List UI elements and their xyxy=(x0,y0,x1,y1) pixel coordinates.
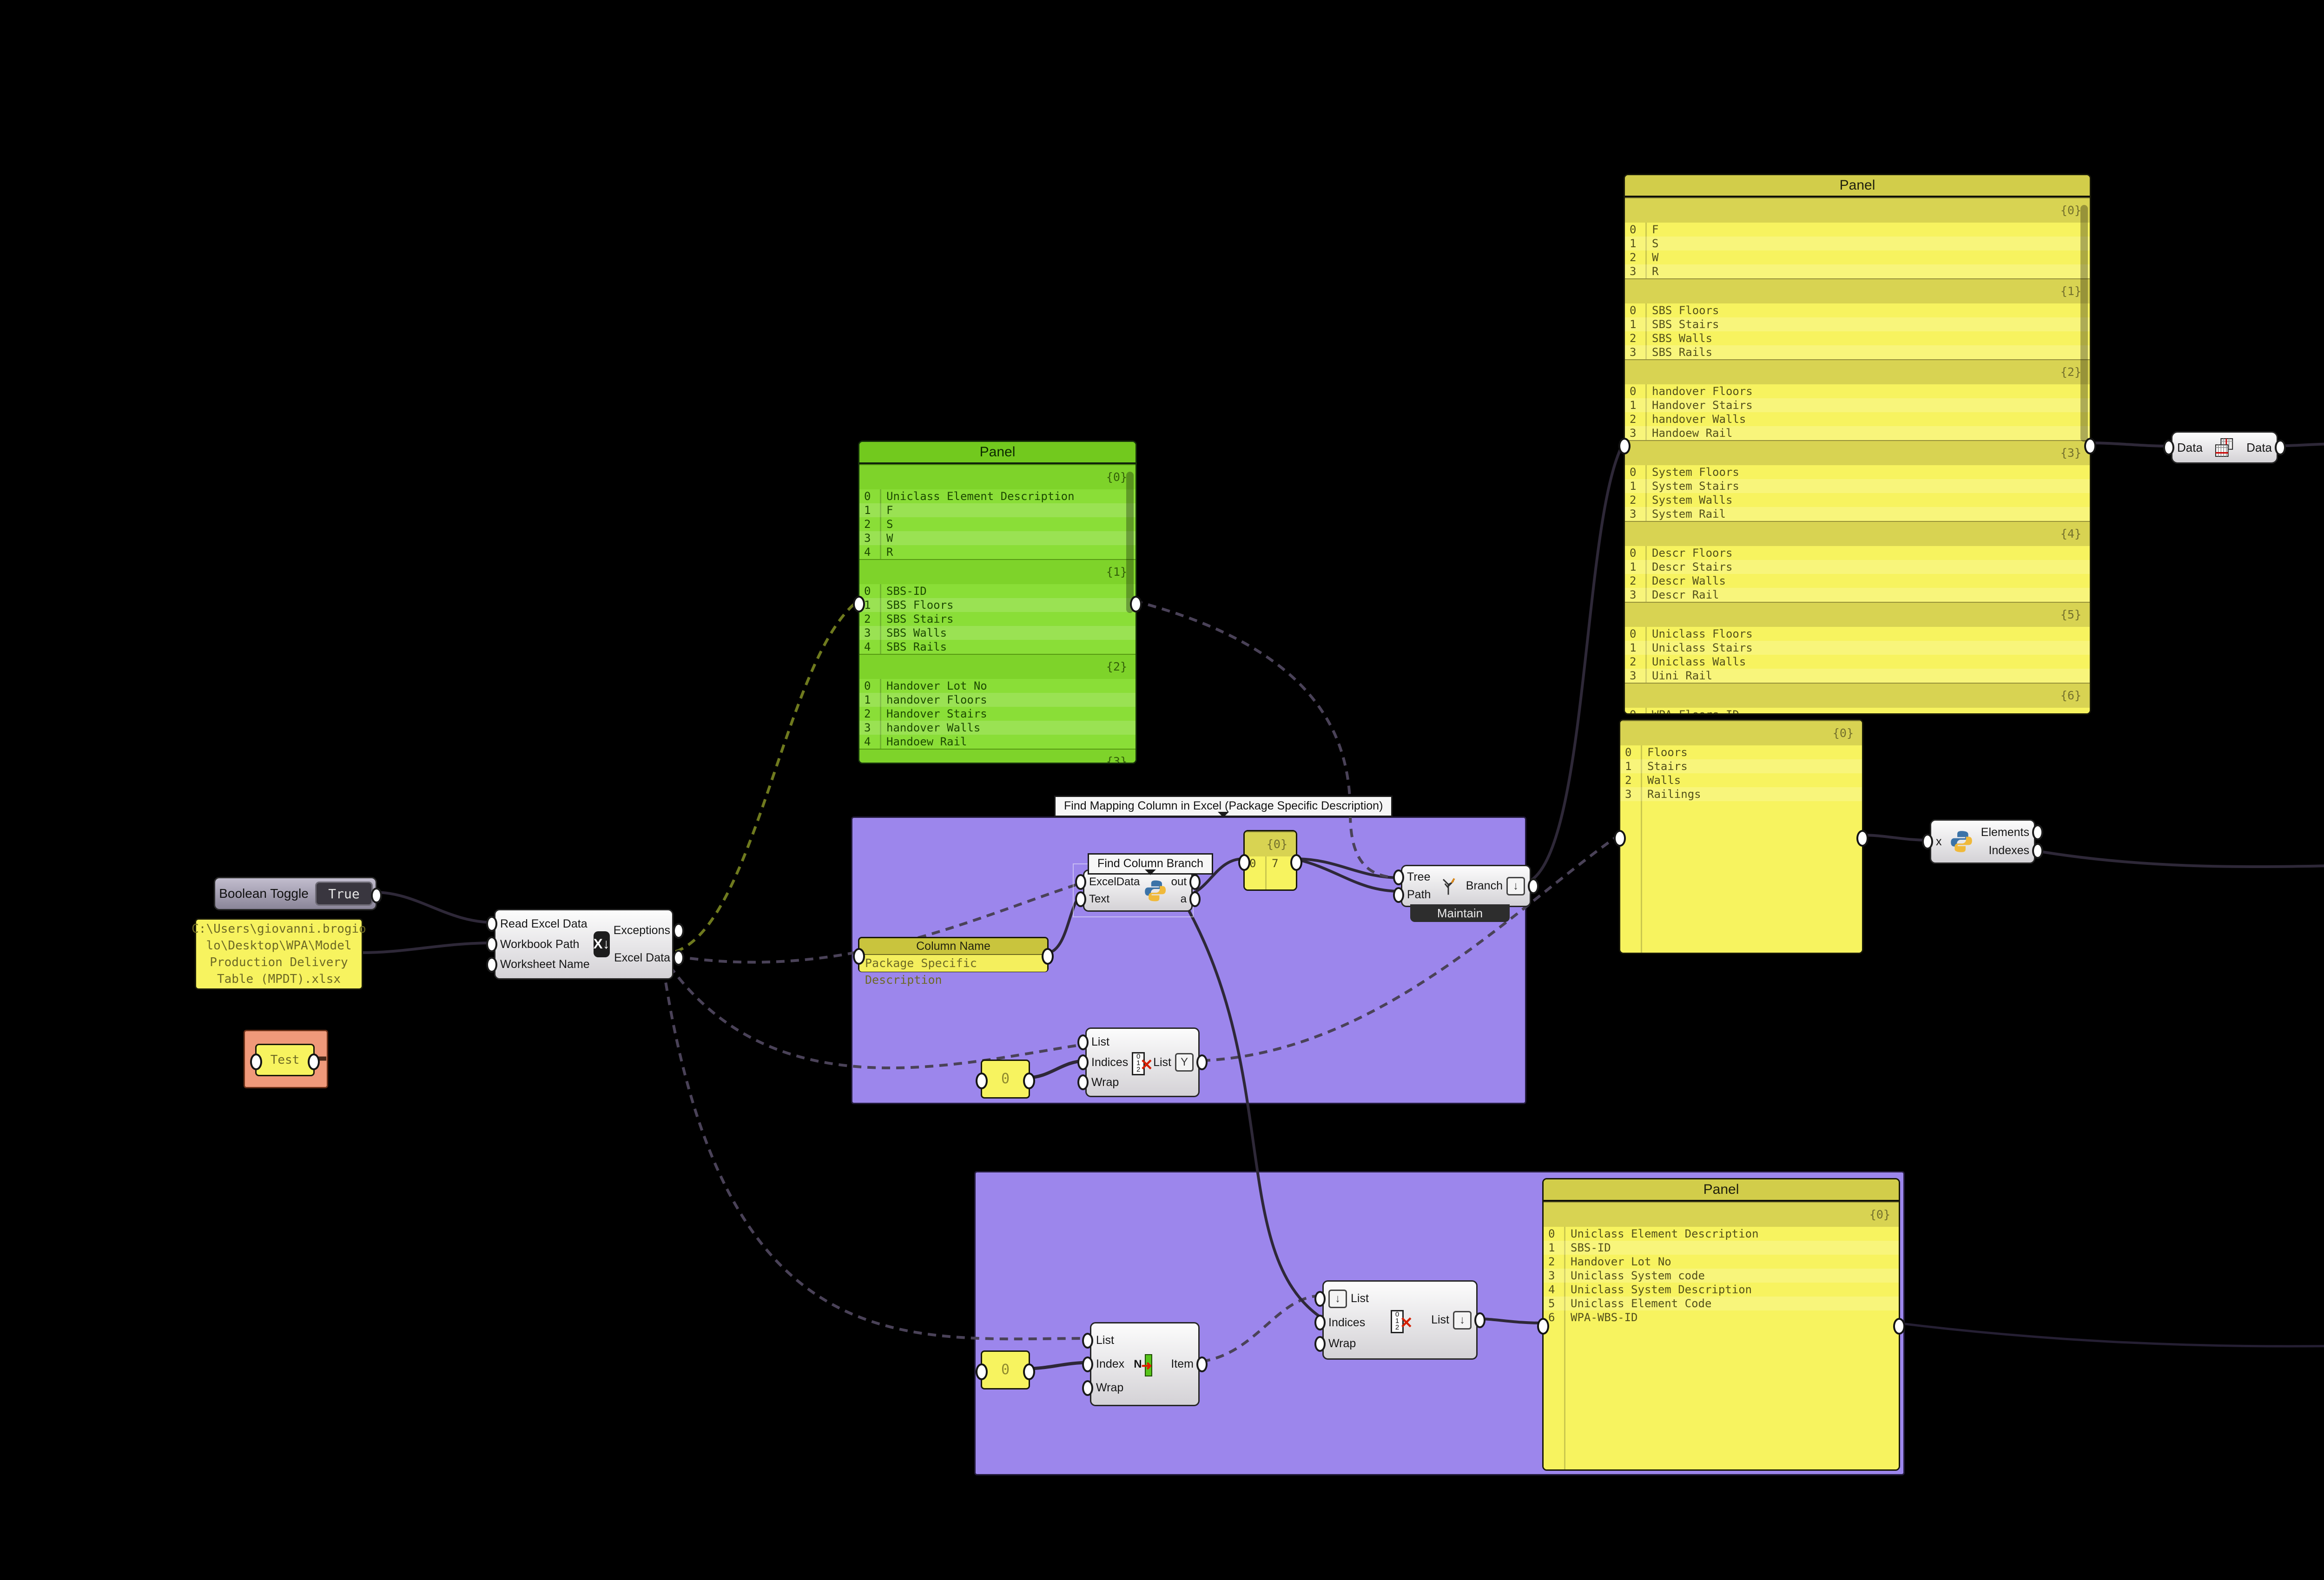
row-index: 2 xyxy=(1544,1255,1564,1269)
row-index: 1 xyxy=(1625,479,1645,493)
row-index: 0 xyxy=(1625,303,1645,317)
input-indices[interactable]: Indices xyxy=(1091,1056,1128,1069)
panel-row: 0Uniclass Element Description xyxy=(859,489,1136,503)
mapping-columns-panel[interactable]: Panel{0}0Uniclass Element Description1SB… xyxy=(1542,1178,1900,1471)
panel-row: 4Uniclass System Description xyxy=(1544,1283,1899,1297)
row-value: System Rail xyxy=(1645,507,1726,521)
row-value: Uniclass System Description xyxy=(1564,1283,1752,1297)
row-value: Uniclass Walls xyxy=(1645,655,1746,669)
input-x[interactable]: x xyxy=(1936,835,1942,849)
row-index: 3 xyxy=(1625,588,1645,602)
wire-exceldata-to-green-panel xyxy=(661,601,858,954)
panel-row: 3R xyxy=(1625,264,2090,278)
panel-row: 2System Walls xyxy=(1625,493,2090,507)
row-value: Uniclass Element Code xyxy=(1564,1297,1711,1310)
row-index: 3 xyxy=(1625,345,1645,359)
row-value: Handover Stairs xyxy=(1645,398,1753,412)
panel-row: 3Uniclass System code xyxy=(1544,1269,1899,1283)
panel-row: 4Handoew Rail xyxy=(859,735,1136,749)
row-value: System Walls xyxy=(1645,493,1732,507)
row-index: 2 xyxy=(1625,655,1645,669)
input-index[interactable]: Index xyxy=(1096,1357,1124,1371)
input-wrap[interactable]: Wrap xyxy=(1328,1337,1369,1350)
panel-row: 0F xyxy=(1625,223,2090,237)
output-branch[interactable]: Branch↓ xyxy=(1466,877,1525,895)
row-value: S xyxy=(880,517,893,531)
list-item-bottom-component[interactable]: List Index Wrap N➜ Item xyxy=(1090,1322,1200,1406)
data-table-icon xyxy=(2214,438,2235,457)
panel-row: 1handover Floors xyxy=(859,693,1136,707)
input-list[interactable]: ↓List xyxy=(1328,1290,1369,1308)
row-index: 1 xyxy=(1544,1241,1564,1255)
row-index: 2 xyxy=(1625,331,1645,345)
branch-path-header: {4} xyxy=(1625,521,2090,546)
row-value: SBS Walls xyxy=(1645,331,1712,345)
panel-row: 2Descr Walls xyxy=(1625,574,2090,588)
output-data[interactable]: Data xyxy=(2246,441,2272,455)
green-data-panel[interactable]: Panel{0}0Uniclass Element Description1F2… xyxy=(858,441,1137,764)
row-value: SBS-ID xyxy=(880,584,927,598)
panel-row: 2handover Walls xyxy=(1625,412,2090,426)
test-panel[interactable]: Test xyxy=(255,1044,315,1076)
row-index: 2 xyxy=(859,612,880,626)
row-value: W xyxy=(1645,250,1658,264)
row-value: Handover Lot No xyxy=(1564,1255,1671,1269)
row-index: 0 xyxy=(1625,223,1645,237)
panel-row: 0handover Floors xyxy=(1625,384,2090,398)
panel-row: 3handover Walls xyxy=(859,721,1136,735)
row-index: 0 xyxy=(1625,465,1645,479)
row-value: Walls xyxy=(1641,773,1681,787)
row-value: 7 xyxy=(1265,856,1278,870)
branch-path-header: {3} xyxy=(859,749,1136,763)
row-index: 4 xyxy=(1544,1283,1564,1297)
panel-row: 3W xyxy=(859,531,1136,545)
input-wrap[interactable]: Wrap xyxy=(1091,1076,1128,1089)
row-index: 1 xyxy=(859,598,880,612)
row-value: WPA Floors ID xyxy=(1645,708,1739,713)
row-value: SBS Rails xyxy=(880,640,947,654)
row-index: 0 xyxy=(1625,627,1645,641)
row-index: 3 xyxy=(859,721,880,735)
row-index: 4 xyxy=(859,735,880,749)
row-value: handover Walls xyxy=(1645,412,1746,426)
row-index: 0 xyxy=(1625,708,1645,713)
panel-row: 2S xyxy=(859,517,1136,531)
output-exceptions[interactable]: Exceptions xyxy=(614,924,670,937)
column-index-panel[interactable]: {0}07 xyxy=(1243,830,1297,891)
row-index: 2 xyxy=(859,517,880,531)
index-zero-panel[interactable]: 0 xyxy=(981,1060,1030,1099)
wire-filepath-to-workbook xyxy=(360,943,494,953)
grasshopper-canvas[interactable]: Boolean Toggle True C:\Users\giovanni.br… xyxy=(0,0,2324,1580)
panel-row: 3SBS Walls xyxy=(859,626,1136,640)
input-worksheet-name[interactable]: Worksheet Name xyxy=(500,958,590,971)
row-index: 0 xyxy=(859,584,880,598)
panel-row: 1SBS Floors xyxy=(859,598,1136,612)
row-index: 0 xyxy=(1544,1227,1564,1241)
panel-row: 1Stairs xyxy=(1620,759,1862,773)
categories-panel[interactable]: {0}0Floors1Stairs2Walls3Railings xyxy=(1619,719,1863,954)
row-index: 0 xyxy=(1625,384,1645,398)
row-index: 1 xyxy=(1620,759,1641,773)
row-value: Floors xyxy=(1641,745,1688,759)
branch-path-header: {0} xyxy=(1245,831,1296,856)
graft-down-icon: ↓ xyxy=(1506,877,1525,895)
row-index: 1 xyxy=(1625,398,1645,412)
row-value: Handover Stairs xyxy=(880,707,987,721)
row-index: 6 xyxy=(1544,1310,1564,1324)
panel-row: 2SBS Stairs xyxy=(859,612,1136,626)
boolean-toggle-label: Boolean Toggle xyxy=(215,886,312,901)
wire-big-to-data xyxy=(2088,443,2171,446)
panel-row: 1Handover Stairs xyxy=(1625,398,2090,412)
row-value: Uniclass Floors xyxy=(1645,627,1753,641)
row-value: SBS Floors xyxy=(1645,303,1719,317)
row-value: Descr Stairs xyxy=(1645,560,1732,574)
panel-row: 0WPA Floors ID xyxy=(1625,708,2090,713)
branch-path-header: {0} xyxy=(859,464,1136,489)
row-index: 1 xyxy=(1625,641,1645,655)
branch-path-header: {2} xyxy=(859,654,1136,679)
panel-body: {0}0F1S2W3R{1}0SBS Floors1SBS Stairs2SBS… xyxy=(1625,197,2090,713)
row-index: 2 xyxy=(1625,250,1645,264)
panel-row: 1F xyxy=(859,503,1136,517)
row-index: 2 xyxy=(1620,773,1641,787)
row-value: Uniclass System code xyxy=(1564,1269,1705,1283)
panel-row: 0Uniclass Element Description xyxy=(1544,1227,1899,1241)
list-item-icon: N➜ xyxy=(1137,1354,1158,1375)
row-index: 0 xyxy=(1245,856,1265,870)
python-find-column-component[interactable]: ExcelData Text out a xyxy=(1083,869,1193,912)
branch-path-header: {6} xyxy=(1625,683,2090,708)
row-value: SBS Stairs xyxy=(1645,317,1719,331)
input-workbook-path[interactable]: Workbook Path xyxy=(500,938,590,951)
row-value: SBS Stairs xyxy=(880,612,954,626)
panel-row: 5Uniclass Element Code xyxy=(1544,1297,1899,1310)
panel-row: 07 xyxy=(1245,856,1296,870)
python-icon xyxy=(1949,829,1974,854)
python-icon xyxy=(1143,879,1167,903)
row-value: SBS Walls xyxy=(880,626,947,640)
row-index: 2 xyxy=(1625,493,1645,507)
row-index: 4 xyxy=(859,640,880,654)
excel-download-icon: X↓ xyxy=(594,931,610,957)
flatten-down-icon: ↓ xyxy=(1453,1311,1472,1330)
panel-row: 2W xyxy=(1625,250,2090,264)
branch-path-header: {2} xyxy=(1625,359,2090,384)
row-value: S xyxy=(1645,237,1658,250)
panel-row: 3Descr Rail xyxy=(1625,588,2090,602)
panel-row: 4SBS Rails xyxy=(859,640,1136,654)
panel-row: 2Handover Lot No xyxy=(1544,1255,1899,1269)
row-value: handover Walls xyxy=(880,721,980,735)
row-index: 0 xyxy=(859,489,880,503)
panel-row: 1Uniclass Stairs xyxy=(1625,641,2090,655)
branch-path-header: {3} xyxy=(1625,440,2090,465)
panel-row: 1System Stairs xyxy=(1625,479,2090,493)
input-data[interactable]: Data xyxy=(2177,441,2203,455)
column-name-value[interactable]: Package Specific Description xyxy=(859,955,1047,972)
row-value: F xyxy=(1645,223,1658,237)
output-elements[interactable]: Elements xyxy=(1981,826,2029,839)
row-index: 3 xyxy=(859,531,880,545)
panel-row: 4R xyxy=(859,545,1136,559)
column-name-title: Column Name xyxy=(859,938,1047,955)
row-value: Handoew Rail xyxy=(1645,426,1732,440)
row-index: 0 xyxy=(1625,546,1645,560)
panel-row: 2Walls xyxy=(1620,773,1862,787)
row-value: Descr Walls xyxy=(1645,574,1726,588)
row-index: 3 xyxy=(1544,1269,1564,1283)
panel-row: 2Uniclass Walls xyxy=(1625,655,2090,669)
row-value: R xyxy=(880,545,893,559)
row-index: 2 xyxy=(859,707,880,721)
branch-path-header: {1} xyxy=(1625,278,2090,303)
panel-row: 0SBS Floors xyxy=(1625,303,2090,317)
panel-row: 0Handover Lot No xyxy=(859,679,1136,693)
row-value: Descr Rail xyxy=(1645,588,1719,602)
panel-row: 0System Floors xyxy=(1625,465,2090,479)
row-value: F xyxy=(880,503,893,517)
output-list[interactable]: ListY xyxy=(1153,1053,1194,1072)
row-index: 2 xyxy=(1625,574,1645,588)
row-value: handover Floors xyxy=(880,693,987,707)
row-index: 3 xyxy=(1625,507,1645,521)
panel-row: 3Uini Rail xyxy=(1625,669,2090,683)
big-data-panel[interactable]: Panel{0}0F1S2W3R{1}0SBS Floors1SBS Stair… xyxy=(1624,174,2091,715)
row-value: handover Floors xyxy=(1645,384,1753,398)
boolean-toggle-value[interactable]: True xyxy=(315,882,373,906)
row-index: 3 xyxy=(1625,264,1645,278)
branch-path-header: {1} xyxy=(859,559,1136,584)
input-list[interactable]: List xyxy=(1096,1334,1124,1347)
output-excel-data[interactable]: Excel Data xyxy=(614,951,670,965)
row-index: 3 xyxy=(1625,669,1645,683)
file-path-panel[interactable]: C:\Users\giovanni.brogio lo\Desktop\WPA\… xyxy=(195,918,363,990)
row-value: Handover Lot No xyxy=(880,679,987,693)
tree-branch-mode[interactable]: Maintain xyxy=(1410,904,1510,922)
input-tree[interactable]: Tree xyxy=(1407,870,1431,884)
column-name-panel[interactable]: Column Name Package Specific Description xyxy=(858,937,1049,972)
panel-row: 2SBS Walls xyxy=(1625,331,2090,345)
tag-find-column-branch[interactable]: Find Column Branch xyxy=(1088,853,1213,875)
row-value: Uniclass Stairs xyxy=(1645,641,1753,655)
panel-body: {0}0Uniclass Element Description1SBS-ID2… xyxy=(1544,1202,1899,1469)
row-value: Railings xyxy=(1641,787,1701,801)
branch-path-header: {5} xyxy=(1625,602,2090,627)
panel-row: 3System Rail xyxy=(1625,507,2090,521)
row-value: Stairs xyxy=(1641,759,1688,773)
wire-toggle-to-read xyxy=(374,892,494,922)
wire-floors-to-python-elem xyxy=(1861,835,1930,840)
row-value: R xyxy=(1645,264,1658,278)
index-zero-panel-b[interactable]: 0 xyxy=(981,1350,1030,1389)
panel-title: Panel xyxy=(859,442,1136,464)
wire-mapping-to-set-params xyxy=(1897,1323,2324,1346)
data-component[interactable]: Data Data xyxy=(2171,431,2278,464)
list-item-icon: 012✕ xyxy=(1391,1310,1409,1330)
row-index: 3 xyxy=(1620,787,1641,801)
row-index: 2 xyxy=(1625,412,1645,426)
wire-branch-to-big-panel xyxy=(1519,443,1624,884)
panel-body: {0}07 xyxy=(1245,831,1296,889)
row-index: 1 xyxy=(859,503,880,517)
row-index: 1 xyxy=(1625,317,1645,331)
row-value: System Floors xyxy=(1645,465,1739,479)
input-list[interactable]: List xyxy=(1091,1035,1128,1049)
row-index: 0 xyxy=(859,679,880,693)
row-index: 3 xyxy=(1625,426,1645,440)
group-tag-find-mapping[interactable]: Find Mapping Column in Excel (Package Sp… xyxy=(1054,796,1393,817)
input-text[interactable]: Text xyxy=(1089,893,1140,906)
output-a[interactable]: a xyxy=(1181,893,1187,906)
output-list[interactable]: List↓ xyxy=(1431,1311,1472,1330)
row-index: 1 xyxy=(1625,237,1645,250)
panel-row: 1SBS Stairs xyxy=(1625,317,2090,331)
row-value: System Stairs xyxy=(1645,479,1739,493)
list-item-icon: 012✕ xyxy=(1132,1052,1149,1073)
output-out[interactable]: out xyxy=(1171,876,1187,889)
branch-path-header: {0} xyxy=(1544,1202,1899,1227)
panel-title: Panel xyxy=(1625,175,2090,197)
row-value: SBS-ID xyxy=(1564,1241,1611,1255)
tree-branch-component[interactable]: Tree Path Branch↓ xyxy=(1401,865,1531,907)
python-elements-component[interactable]: x Elements Indexes xyxy=(1930,819,2035,864)
row-value: Uniclass Element Description xyxy=(880,489,1075,503)
zip-icon: Y xyxy=(1175,1053,1194,1072)
panel-row: 0Floors xyxy=(1620,745,1862,759)
branch-path-header: {0} xyxy=(1625,197,2090,223)
row-value: Handoew Rail xyxy=(880,735,967,749)
row-index: 5 xyxy=(1544,1297,1564,1310)
output-indexes[interactable]: Indexes xyxy=(1988,844,2029,857)
row-value: SBS Floors xyxy=(880,598,954,612)
row-value: WPA-WBS-ID xyxy=(1564,1310,1638,1324)
output-item[interactable]: Item xyxy=(1171,1357,1194,1371)
read-excel-data-component[interactable]: Read Excel Data Workbook Path Worksheet … xyxy=(494,909,673,980)
input-exceldata[interactable]: ExcelData xyxy=(1089,876,1140,889)
panel-row: 3Railings xyxy=(1620,787,1862,801)
row-value: Uniclass Element Description xyxy=(1564,1227,1759,1241)
row-index: 0 xyxy=(1620,745,1641,759)
list-item-bottom-b-component[interactable]: ↓List Indices Wrap 012✕ List↓ xyxy=(1322,1280,1478,1360)
list-item-top-component[interactable]: List Indices Wrap 012✕ ListY xyxy=(1085,1027,1200,1097)
boolean-toggle[interactable]: Boolean Toggle True xyxy=(214,877,377,910)
panel-row: 1Descr Stairs xyxy=(1625,560,2090,574)
tree-icon xyxy=(1438,876,1459,896)
input-read-excel-data[interactable]: Read Excel Data xyxy=(500,917,590,931)
panel-row: 2Handover Stairs xyxy=(859,707,1136,721)
input-path[interactable]: Path xyxy=(1407,888,1431,902)
row-index: 3 xyxy=(859,626,880,640)
panel-body: {0}0Uniclass Element Description1F2S3W4R… xyxy=(859,464,1136,763)
panel-row: 3Handoew Rail xyxy=(1625,426,2090,440)
panel-row: 1SBS-ID xyxy=(1544,1241,1899,1255)
panel-row: 0Descr Floors xyxy=(1625,546,2090,560)
row-value: Descr Floors xyxy=(1645,546,1732,560)
panel-title: Panel xyxy=(1544,1179,1899,1202)
row-value: W xyxy=(880,531,893,545)
row-index: 1 xyxy=(1625,560,1645,574)
panel-row: 6WPA-WBS-ID xyxy=(1544,1310,1899,1324)
row-index: 4 xyxy=(859,545,880,559)
flatten-down-icon: ↓ xyxy=(1328,1290,1347,1308)
row-index: 1 xyxy=(859,693,880,707)
panel-row: 0SBS-ID xyxy=(859,584,1136,598)
input-indices[interactable]: Indices xyxy=(1328,1316,1369,1330)
branch-path-header: {0} xyxy=(1620,720,1862,745)
row-value: Uini Rail xyxy=(1645,669,1712,683)
input-wrap[interactable]: Wrap xyxy=(1096,1381,1124,1395)
panel-row: 1S xyxy=(1625,237,2090,250)
row-value: SBS Rails xyxy=(1645,345,1712,359)
panel-row: 0Uniclass Floors xyxy=(1625,627,2090,641)
wire-indexes-to-python-xi xyxy=(2023,849,2324,867)
panel-row: 3SBS Rails xyxy=(1625,345,2090,359)
panel-body: {0}0Floors1Stairs2Walls3Railings xyxy=(1620,720,1862,953)
